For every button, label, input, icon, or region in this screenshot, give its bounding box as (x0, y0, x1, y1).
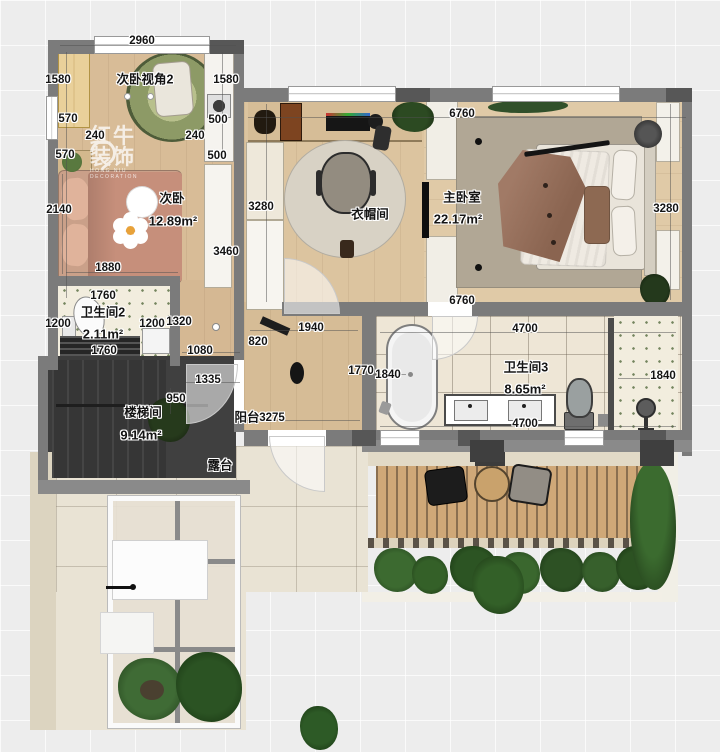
bathtub-drain (408, 372, 413, 377)
wall-bath2-top (48, 276, 180, 286)
cabinet-master-2 (426, 236, 458, 304)
chair-armrest (316, 170, 322, 196)
room-label: 主卧室 (443, 187, 481, 206)
dimension-label: 1880 (95, 262, 121, 274)
wall-rooms-bottom (362, 302, 692, 316)
ceiling-light-marker (475, 138, 482, 145)
wall-pier (396, 88, 430, 102)
room-label: 衣帽间 (351, 204, 389, 223)
deck-chair-gray (507, 463, 552, 507)
brand-subtitle: HONG NIU DECORATION (90, 168, 138, 180)
stool-master (634, 120, 662, 148)
window-west (46, 96, 58, 140)
deck-border-top (368, 452, 658, 466)
deck-pier (470, 440, 504, 462)
dimension-label: 6760 (449, 108, 475, 120)
area-label: 22.17m² (434, 212, 482, 227)
dimension-label: 2140 (46, 204, 72, 216)
blanket-button (543, 183, 548, 188)
dimension-label: 820 (248, 336, 267, 348)
dimension-label: 6760 (449, 295, 475, 307)
bath2-vanity (142, 328, 170, 354)
pillow-brown (584, 186, 610, 244)
wall-pier (208, 40, 244, 54)
marker-dot (124, 93, 131, 100)
wall-east (682, 88, 692, 456)
view-label: 次卧视角2 (117, 69, 174, 88)
counter-handle (106, 586, 132, 589)
dim-line (66, 272, 178, 273)
sink (454, 400, 488, 421)
toilet-bowl-3 (566, 378, 593, 418)
dimension-label: 1760 (91, 345, 117, 357)
window-top-2 (492, 86, 620, 102)
deck-table (474, 466, 510, 502)
shrub (540, 548, 584, 592)
dimension-label: 1770 (348, 365, 374, 377)
plant-edge (300, 706, 338, 750)
balcony-object (290, 362, 304, 384)
dimension-label: 3275 (259, 412, 285, 424)
terrace-cabinet (100, 612, 154, 654)
shrub (582, 552, 620, 592)
window-bottom-1 (380, 430, 420, 446)
dimension-label: 1840 (375, 369, 401, 381)
chair-armrest (370, 170, 376, 196)
deck-chair-black (424, 465, 469, 506)
faucet-dot (522, 404, 526, 408)
deck-mat-strip (368, 538, 658, 548)
blanket-button (551, 240, 556, 245)
shower-partition (608, 318, 614, 430)
room-label: 阳台 (234, 407, 259, 426)
plant-broadleaf (176, 652, 242, 722)
dimension-label: 570 (58, 113, 77, 125)
window-bottom-2 (564, 430, 604, 446)
area-label: 12.89m² (149, 214, 197, 229)
dimension-label: 1335 (195, 374, 221, 386)
faucet-dot (468, 404, 472, 408)
wall-terrace-strip (38, 480, 250, 494)
desk-monitor (326, 116, 370, 131)
plant-pot (140, 680, 164, 700)
wall-pier (666, 88, 692, 102)
dimension-label: 1580 (45, 74, 71, 86)
pillow-master (610, 149, 637, 201)
shower-head (636, 398, 656, 418)
window-top-1 (288, 86, 396, 102)
dimension-label: 950 (166, 393, 185, 405)
ceiling-light-marker (475, 264, 482, 271)
marker-dot (147, 93, 154, 100)
terrace-counter (112, 540, 208, 600)
footrest (340, 240, 354, 258)
dimension-label: 500 (208, 114, 227, 126)
wall-west-lower (38, 356, 48, 480)
pillow-master (611, 205, 638, 256)
dimension-label: 1760 (90, 290, 116, 302)
dimension-label: 240 (85, 130, 104, 142)
shrub (412, 556, 448, 594)
room-label: 次卧 (159, 188, 184, 207)
dimension-label: 3460 (213, 246, 239, 258)
area-label: 2.11m² (83, 327, 123, 342)
wall-pier (352, 430, 376, 446)
room-label: 楼梯间 (124, 402, 162, 421)
desk-plant-pot (254, 110, 276, 134)
dimension-label: 1320 (166, 316, 192, 328)
dimension-label: 3280 (653, 203, 679, 215)
deck-pier (640, 440, 674, 466)
marker-dot (212, 323, 220, 331)
dimension-label: 1580 (213, 74, 239, 86)
dimension-label: 1940 (298, 322, 324, 334)
dimension-label: 1840 (650, 370, 676, 382)
dimension-label: 570 (55, 149, 74, 161)
flower-decor (126, 226, 135, 235)
floor-plan-canvas: 红牛装饰 HONG NIU DECORATION 次卧视角22960158015… (0, 0, 720, 752)
cabinet-bedroom2-side (204, 164, 232, 288)
room-label: 露台 (207, 455, 232, 474)
dimension-label: 1200 (139, 318, 165, 330)
dimension-label: 2960 (129, 35, 155, 47)
dimension-label: 1200 (45, 318, 71, 330)
area-label: 9.14m² (120, 428, 161, 443)
dimension-label: 4700 (512, 323, 538, 335)
brand-watermark: 红牛装饰 HONG NIU DECORATION (90, 140, 116, 166)
room-label: 卫生间3 (504, 357, 548, 376)
dimension-label: 4700 (512, 418, 538, 430)
plant-center-large (472, 556, 524, 614)
dim-line (222, 52, 223, 160)
plant-tall (630, 462, 676, 590)
blanket-button (547, 213, 552, 218)
desk-shelf (280, 103, 302, 141)
room-label: 卫生间2 (81, 302, 125, 321)
dimension-label: 1080 (187, 345, 213, 357)
dim-line (62, 174, 63, 274)
dimension-label: 500 (207, 150, 226, 162)
dimension-label: 3280 (248, 201, 274, 213)
dimension-label: 240 (185, 130, 204, 142)
dim-line (66, 52, 67, 298)
wardrobe-cloakroom-2 (246, 220, 284, 310)
counter-handle-dot (130, 584, 136, 590)
dim-line (670, 104, 671, 300)
area-label: 8.65m² (504, 382, 545, 397)
tv-panel (422, 182, 429, 238)
